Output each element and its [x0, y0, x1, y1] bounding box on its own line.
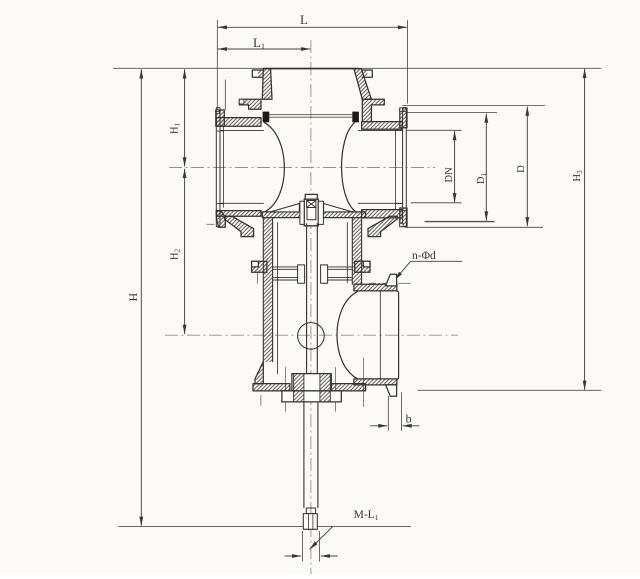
- svg-text:L: L: [300, 12, 308, 27]
- svg-text:D: D: [516, 165, 527, 173]
- svg-text:b: b: [406, 412, 412, 426]
- svg-text:DN: DN: [444, 167, 455, 183]
- svg-text:n-Φd: n-Φd: [412, 250, 436, 262]
- svg-text:H: H: [126, 293, 140, 302]
